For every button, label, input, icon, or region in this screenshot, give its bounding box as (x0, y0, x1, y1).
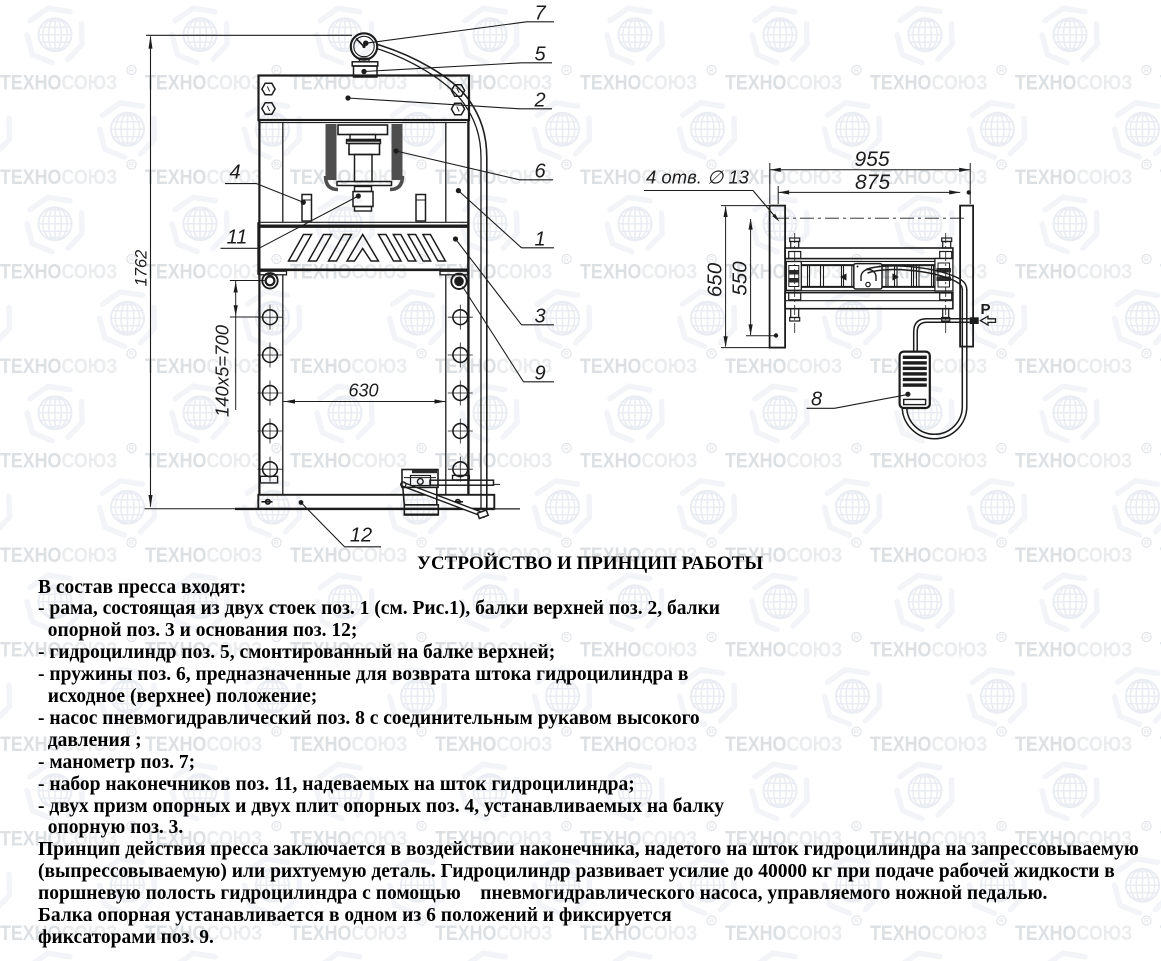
svg-text:4 отв. ∅ 13: 4 отв. ∅ 13 (646, 167, 750, 188)
svg-text:140х5=700: 140х5=700 (212, 324, 233, 417)
svg-text:P: P (981, 301, 991, 318)
svg-text:6: 6 (534, 161, 546, 183)
svg-text:7: 7 (534, 3, 546, 25)
svg-text:1: 1 (534, 229, 545, 251)
svg-text:1762: 1762 (133, 250, 151, 287)
svg-text:5: 5 (534, 44, 546, 66)
svg-text:3: 3 (534, 306, 545, 328)
svg-text:2: 2 (533, 90, 545, 112)
svg-text:630: 630 (348, 381, 378, 401)
svg-text:875: 875 (855, 171, 890, 194)
svg-text:650: 650 (704, 262, 727, 297)
svg-text:8: 8 (811, 389, 822, 411)
svg-text:955: 955 (854, 148, 889, 171)
svg-text:12: 12 (350, 525, 372, 547)
svg-text:550: 550 (729, 261, 752, 296)
svg-text:4: 4 (229, 162, 240, 184)
svg-text:9: 9 (534, 363, 545, 385)
svg-text:11: 11 (227, 227, 248, 249)
